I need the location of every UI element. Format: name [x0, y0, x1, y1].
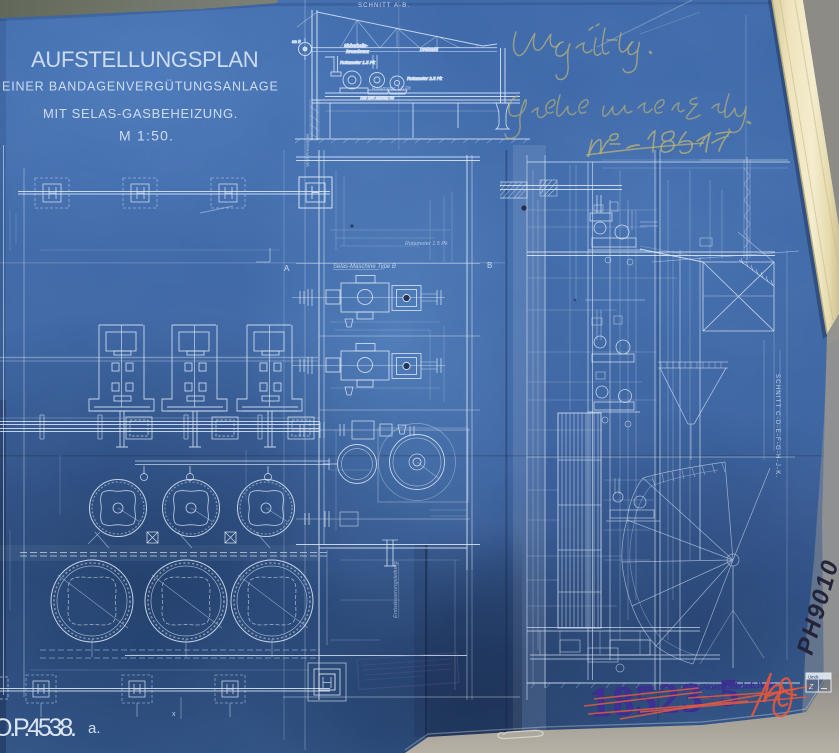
svg-text:a.: a. [88, 720, 101, 737]
svg-text:M 1:50.: M 1:50. [119, 128, 175, 144]
svg-text:Z: Z [808, 684, 814, 691]
svg-text:5: 5 [719, 672, 740, 715]
svg-text:720 150 2x25kg 50: 720 150 2x25kg 50 [360, 95, 395, 100]
svg-text:MIT SELAS-GASBEHEIZUNG.: MIT SELAS-GASBEHEIZUNG. [43, 106, 239, 121]
svg-text:x: x [172, 711, 176, 718]
svg-text:O.P.4538.: O.P.4538. [0, 714, 77, 742]
svg-text:Selas-Maschine Type B: Selas-Maschine Type B [333, 264, 396, 270]
svg-text:AUFSTELLUNGSPLAN: AUFSTELLUNGSPLAN [31, 47, 261, 72]
svg-text:Vom Pressnivel: Vom Pressnivel [305, 133, 311, 167]
svg-text:A: A [284, 264, 290, 273]
svg-text:Rotameter 1.5 Pk: Rotameter 1.5 Pk [340, 60, 376, 65]
svg-text:Umdr.: Umdr. [808, 674, 819, 679]
svg-text:18523: 18523 [589, 675, 706, 727]
svg-text:Brennkranz: Brennkranz [346, 49, 370, 54]
svg-text:Rotameter 2.5 Pk: Rotameter 2.5 Pk [407, 76, 443, 81]
svg-text:Entwässerungsleitung: Entwässerungsleitung [393, 561, 399, 618]
svg-text:ca 6: ca 6 [292, 39, 301, 44]
svg-text:Rotameter 1.5 Pk: Rotameter 1.5 Pk [372, 86, 411, 92]
svg-text:SCHNITT A-B.: SCHNITT A-B. [358, 3, 410, 9]
svg-text:Sicherheits-: Sicherheits- [344, 43, 368, 48]
svg-text:SCHNITT C-D-E-F-G-H-J-K.: SCHNITT C-D-E-F-G-H-J-K. [774, 374, 780, 478]
svg-text:Drehzahl: Drehzahl [420, 47, 439, 52]
svg-text:B: B [487, 261, 492, 270]
svg-text:Rotameter 1.5 Pk: Rotameter 1.5 Pk [405, 241, 448, 247]
svg-text:EINER BANDAGENVERGÜTUNGSANLAGE: EINER BANDAGENVERGÜTUNGSANLAGE [2, 80, 279, 94]
